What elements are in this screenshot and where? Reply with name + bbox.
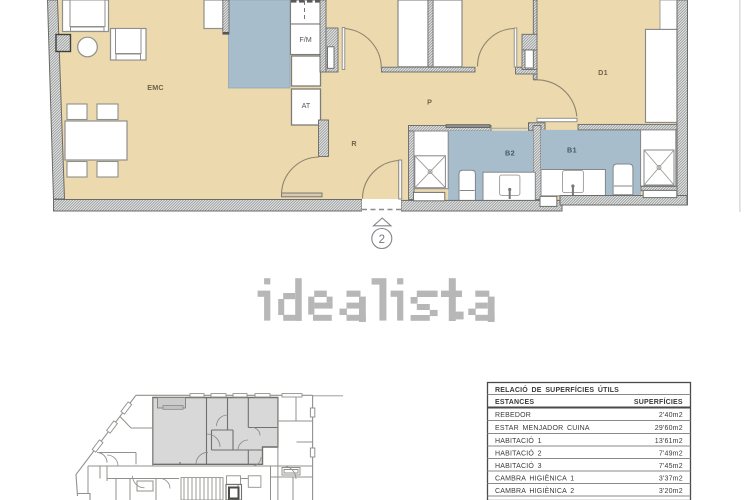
svg-text:B1: B1 bbox=[567, 146, 577, 155]
svg-text:29'60m2: 29'60m2 bbox=[655, 425, 683, 432]
svg-text:7'45m2: 7'45m2 bbox=[659, 463, 683, 470]
svg-text:CAMBRA HIGIÈNICA 2: CAMBRA HIGIÈNICA 2 bbox=[495, 486, 574, 495]
svg-text:D1: D1 bbox=[598, 68, 608, 77]
svg-text:3'37m2: 3'37m2 bbox=[659, 475, 683, 482]
svg-text:ESTAR MENJADOR CUINA: ESTAR MENJADOR CUINA bbox=[495, 425, 590, 432]
svg-text:2'40m2: 2'40m2 bbox=[659, 412, 683, 419]
svg-text:EMC: EMC bbox=[147, 83, 164, 92]
svg-text:HABITACIÓ 1: HABITACIÓ 1 bbox=[495, 436, 542, 445]
svg-text:7'49m2: 7'49m2 bbox=[659, 450, 683, 457]
svg-text:3'20m2: 3'20m2 bbox=[659, 488, 683, 495]
svg-text:AT: AT bbox=[302, 101, 311, 110]
svg-text:CAMBRA HIGIÈNICA 1: CAMBRA HIGIÈNICA 1 bbox=[495, 473, 574, 482]
svg-text:B2: B2 bbox=[505, 149, 515, 158]
svg-text:REBEDOR: REBEDOR bbox=[495, 412, 531, 419]
svg-text:13'61m2: 13'61m2 bbox=[655, 438, 683, 445]
svg-text:2: 2 bbox=[379, 234, 385, 246]
svg-text:ESTANCES: ESTANCES bbox=[495, 399, 534, 406]
svg-text:HABITACIÓ 3: HABITACIÓ 3 bbox=[495, 461, 542, 470]
svg-text:R: R bbox=[351, 139, 357, 148]
svg-text:RELACIÓ DE SUPERFÍCIES ÚTILS: RELACIÓ DE SUPERFÍCIES ÚTILS bbox=[495, 385, 619, 394]
svg-text:F/M: F/M bbox=[299, 35, 311, 44]
svg-text:P: P bbox=[427, 98, 432, 107]
svg-text:SUPERFÍCIES: SUPERFÍCIES bbox=[634, 397, 683, 406]
svg-text:HABITACIÓ 2: HABITACIÓ 2 bbox=[495, 448, 542, 457]
